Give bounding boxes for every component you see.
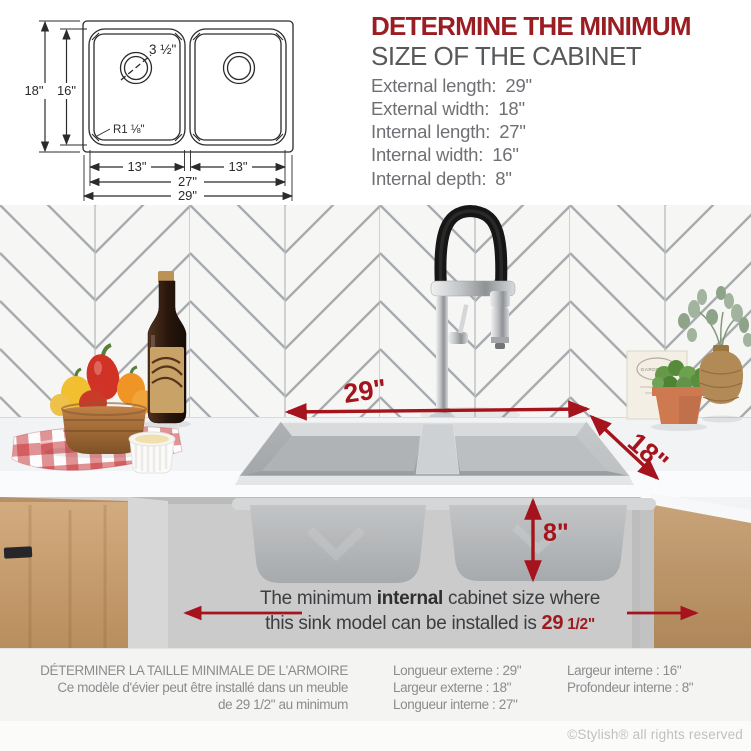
- outer-length-label: 29": [178, 188, 197, 203]
- french-sub2: de 29 1/2" au minimum: [18, 696, 348, 713]
- ramekin: [129, 432, 175, 473]
- left-bowl-underside: [250, 505, 426, 583]
- french-sub1: Ce modèle d'évier peut être installé dan…: [18, 679, 348, 696]
- footer-strip: ©Stylish® all rights reserved: [0, 721, 751, 751]
- fr-spec-profondeur-interne: Profondeur interne : 8": [567, 679, 693, 696]
- sink-cabinet-infographic: 18" 16" 13" 13" 27" 29" 3 ½" R1 ⅛" DETER…: [0, 0, 751, 751]
- sink-dimension-diagram: 18" 16" 13" 13" 27" 29" 3 ½" R1 ⅛": [0, 0, 320, 205]
- french-specs-right: Largeur interne : 16" Profondeur interne…: [567, 662, 693, 696]
- caption-line2: this sink model can be installed is 291/…: [150, 611, 710, 637]
- inner-width-label: 16": [57, 83, 76, 98]
- heading-block: DETERMINE THE MINIMUM SIZE OF THE CABINE…: [371, 12, 749, 190]
- cabinet-handle: [4, 546, 33, 558]
- stainless-sink: [235, 422, 634, 485]
- left-bowl-width-label: 13": [127, 159, 146, 174]
- length-annotation: 29": [342, 373, 389, 409]
- spec-internal-depth: Internal depth:8": [371, 167, 749, 190]
- french-heading: DÉTERMINER LA TAILLE MINIMALE DE L'ARMOI…: [18, 662, 348, 679]
- left-wood-cabinet: [0, 497, 128, 648]
- depth-annotation: 8": [543, 519, 569, 547]
- title-line2: SIZE OF THE CABINET: [371, 42, 749, 71]
- french-section: DÉTERMINER LA TAILLE MINIMALE DE L'ARMOI…: [0, 648, 751, 751]
- drain-leader-line: [121, 55, 151, 80]
- title-line1: DETERMINE THE MINIMUM: [371, 12, 749, 41]
- kitchen-photo: GARDENING: [0, 205, 751, 648]
- radius-leader-line: [97, 129, 110, 136]
- french-specs-left: Longueur externe : 29" Largeur externe :…: [393, 662, 521, 713]
- sink-front-rim: [235, 476, 634, 485]
- spec-list: External length:29" External width:18" I…: [371, 74, 749, 190]
- min-size-value: 29: [542, 612, 564, 634]
- woven-vase: [699, 351, 743, 404]
- fr-spec-longueur-interne: Longueur interne : 27": [393, 696, 521, 713]
- spec-external-length: External length:29": [371, 74, 749, 97]
- spray-head-collar: [490, 291, 510, 307]
- fr-spec-largeur-interne: Largeur interne : 16": [567, 662, 693, 679]
- caption-line1: The minimum internal cabinet size where: [150, 586, 710, 611]
- spec-internal-length: Internal length:27": [371, 120, 749, 143]
- french-summary: DÉTERMINER LA TAILLE MINIMALE DE L'ARMOI…: [18, 662, 348, 713]
- copyright: ©Stylish® all rights reserved: [567, 727, 743, 742]
- right-bowl-width-label: 13": [228, 159, 247, 174]
- spec-external-width: External width:18": [371, 97, 749, 120]
- fr-spec-longueur-externe: Longueur externe : 29": [393, 662, 521, 679]
- faucet-riser: [436, 296, 448, 412]
- right-bowl-underside: [449, 505, 627, 581]
- spray-nozzle: [495, 343, 505, 349]
- faucet-spout-stub: [448, 332, 468, 344]
- bowl-divider: [416, 424, 459, 474]
- corner-radius-label: R1 ⅛": [113, 124, 145, 136]
- top-section: 18" 16" 13" 13" 27" 29" 3 ½" R1 ⅛" DETER…: [0, 0, 751, 205]
- spray-head: [491, 307, 509, 341]
- caption: The minimum internal cabinet size where …: [150, 586, 710, 637]
- inner-length-label: 27": [178, 174, 197, 189]
- outer-width-label: 18": [24, 83, 43, 98]
- spec-internal-width: Internal width:16": [371, 143, 749, 166]
- fr-spec-largeur-externe: Largeur externe : 18": [393, 679, 521, 696]
- drain-size-label: 3 ½": [149, 42, 177, 57]
- kitchen-scene: GARDENING: [0, 205, 751, 648]
